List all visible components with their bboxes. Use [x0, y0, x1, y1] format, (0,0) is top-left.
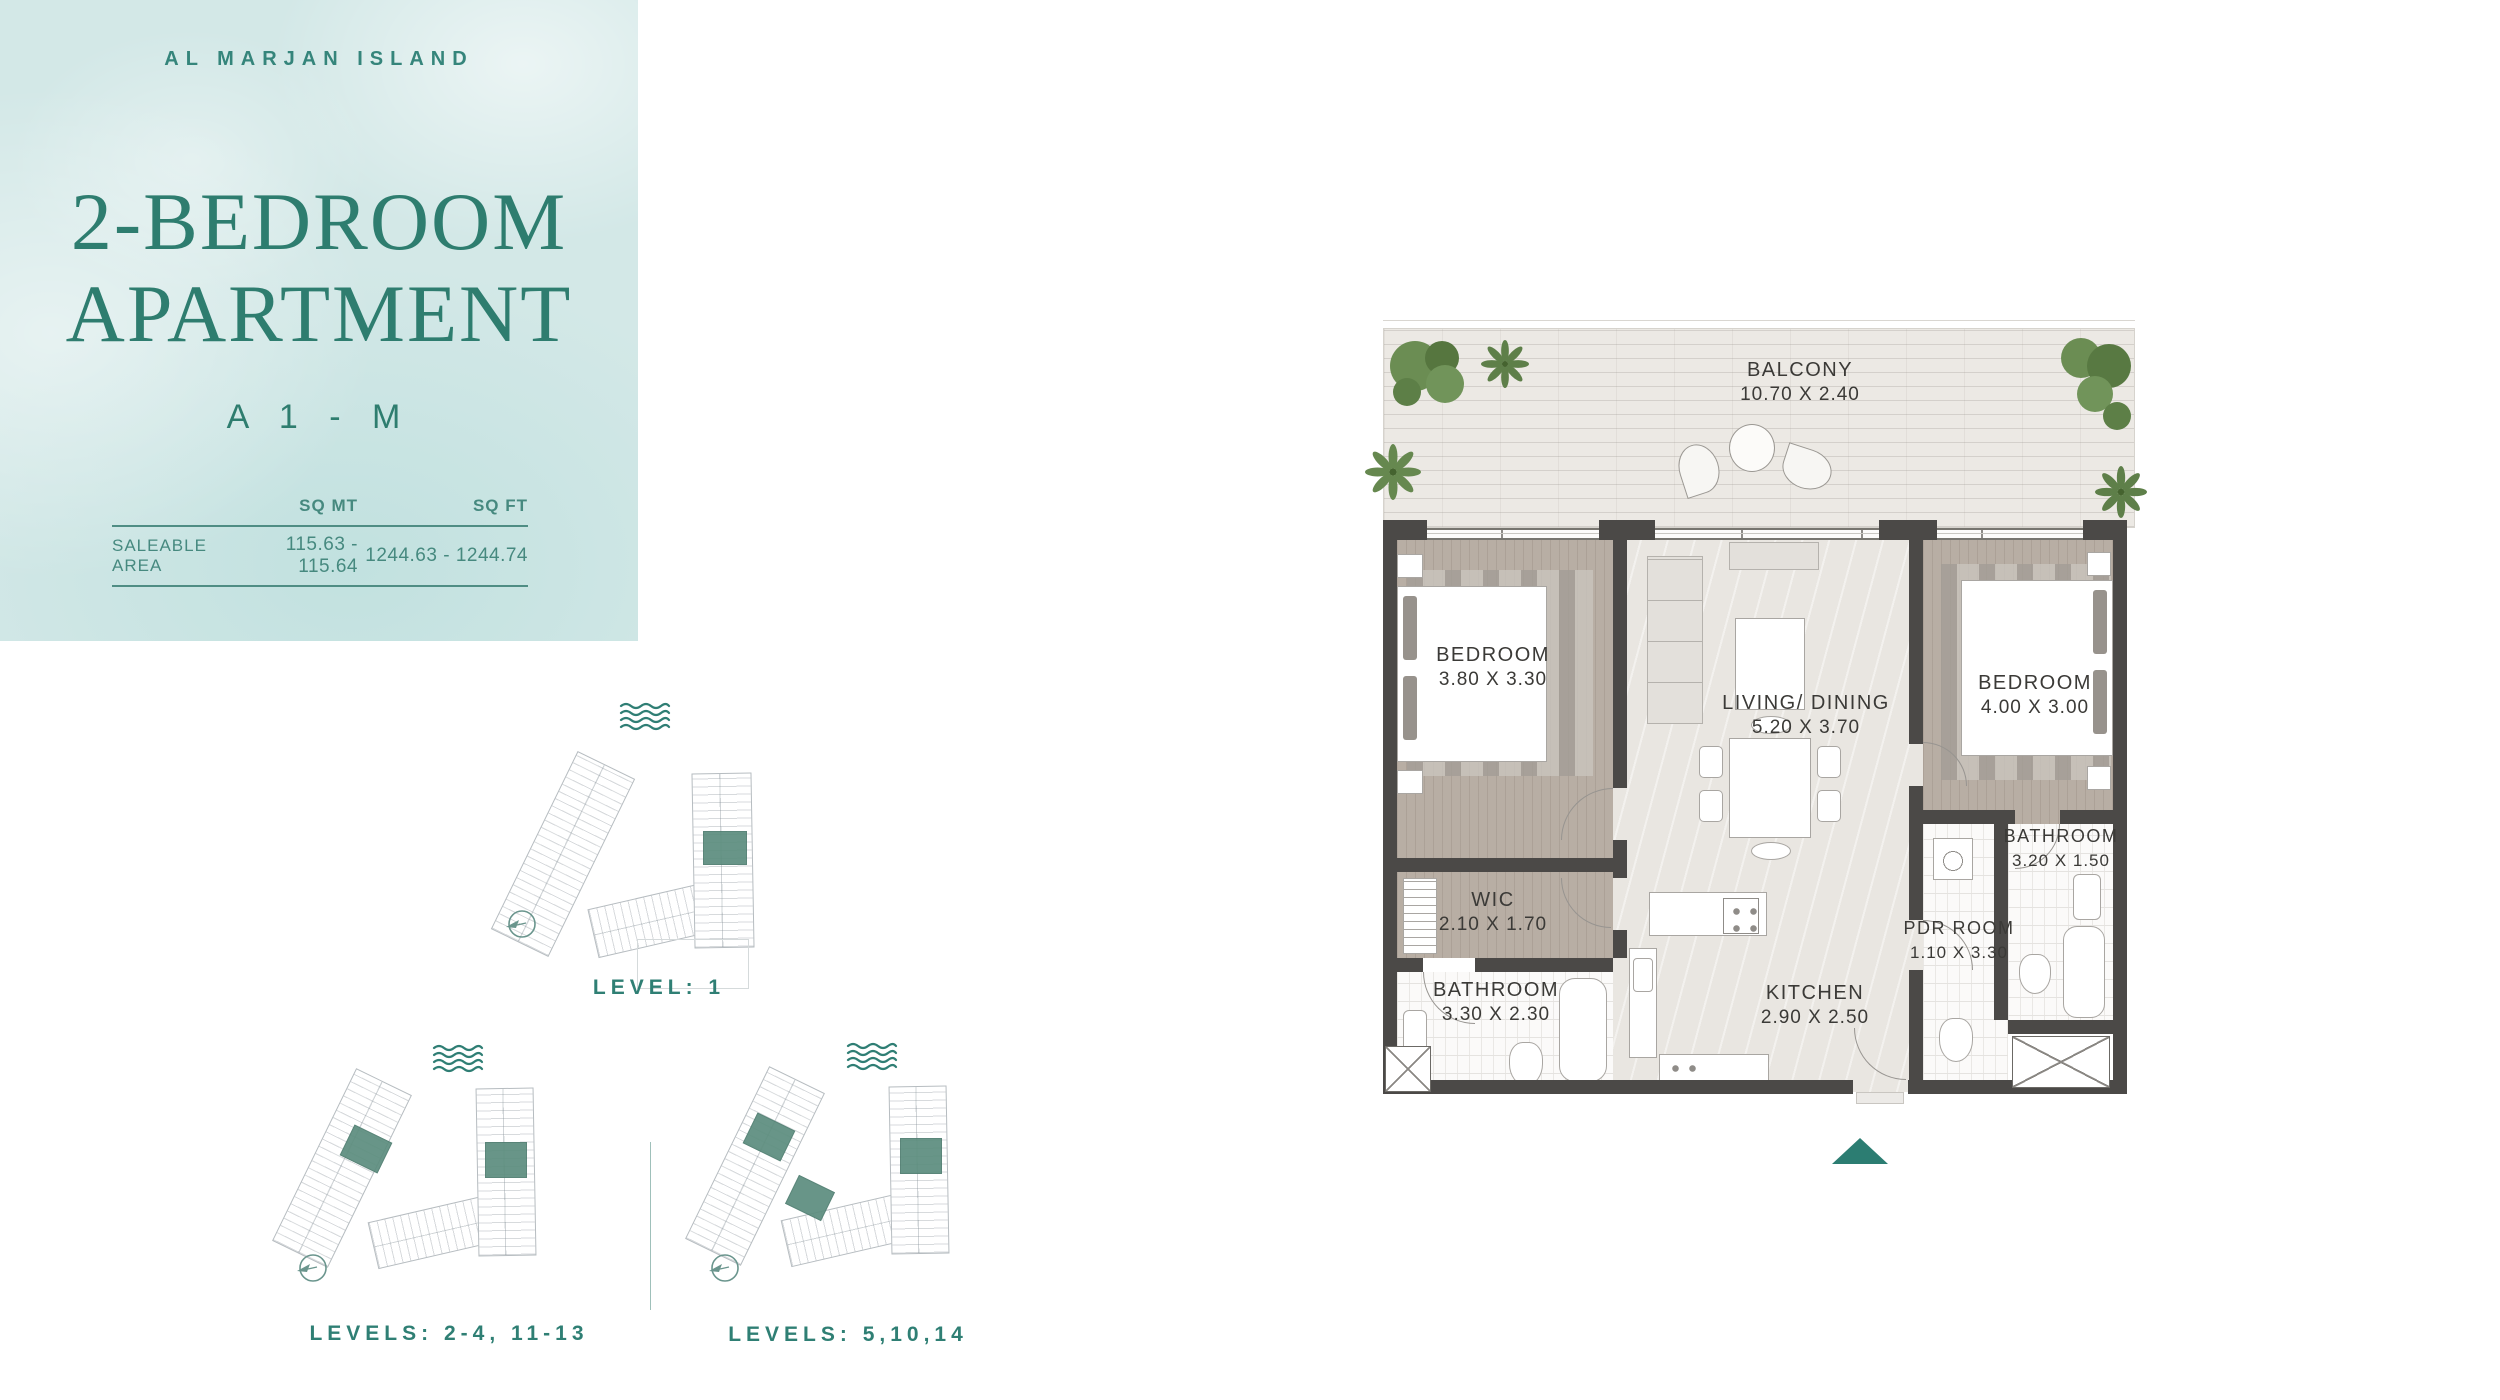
info-panel: AL MARJAN ISLAND 2-BEDROOM APARTMENT A 1… [0, 0, 638, 641]
room-label-living-dining: LIVING/ DINING 5.20 X 3.70 [1722, 693, 1890, 738]
room-name: BATHROOM [2004, 826, 2119, 847]
wall [1383, 524, 1397, 1094]
room-label-bathroom-1: BATHROOM 3.30 X 2.30 [1433, 980, 1559, 1025]
wall [1475, 958, 1613, 972]
table-header-row: SQ MT SQ FT [112, 496, 528, 525]
shaft [2012, 1036, 2110, 1088]
wall [1397, 958, 1423, 972]
room-label-pdr-room: PDR ROOM 1.10 X 3.30 [1904, 918, 2015, 963]
room-name: WIC [1439, 890, 1547, 911]
wall [2060, 810, 2113, 824]
nightstand [2087, 552, 2111, 576]
wall [1909, 540, 1923, 744]
level-1-keyplan [505, 753, 790, 993]
highlighted-unit [703, 831, 747, 865]
title-line-1: 2-BEDROOM [0, 176, 638, 268]
room-label-balcony: BALCONY 10.70 X 2.40 [1740, 360, 1860, 405]
wall [1613, 540, 1627, 788]
wall [2113, 524, 2127, 1094]
wall [1397, 858, 1613, 872]
wall [1923, 810, 2015, 824]
toilet [2019, 954, 2051, 994]
palm-icon [1365, 444, 1421, 500]
room-name: BATHROOM [1433, 980, 1559, 1001]
room-dims: 1.10 X 3.30 [1904, 942, 2015, 963]
dimension-line [1383, 320, 2135, 321]
room-label-bedroom-1: BEDROOM 3.80 X 3.30 [1436, 645, 1550, 690]
room-dims: 2.90 X 2.50 [1761, 1007, 1869, 1028]
entry-direction-icon [1832, 1138, 1888, 1164]
wall [1383, 520, 1427, 540]
sofa [1647, 556, 1703, 724]
dining-chair [1699, 746, 1723, 778]
wardrobe [1403, 878, 1437, 954]
room-name: PDR ROOM [1904, 918, 2015, 939]
dining-chair [1817, 746, 1841, 778]
header-sqft: SQ FT [358, 496, 528, 516]
shaft [1385, 1046, 1431, 1092]
levels-2-4-keyplan [293, 1072, 583, 1277]
waves-icon [432, 1044, 484, 1074]
tree-icon [2051, 332, 2139, 442]
dining-chair [1817, 790, 1841, 822]
wall [2008, 1020, 2113, 1034]
wall [1909, 786, 1923, 824]
entrance-threshold [1856, 1092, 1904, 1104]
keyplan-divider [650, 1142, 651, 1310]
bathtub [2063, 926, 2105, 1018]
nightstand [2087, 766, 2111, 790]
waves-icon [619, 702, 671, 732]
room-label-bathroom-2: BATHROOM 3.20 X 1.50 [2004, 826, 2119, 871]
balcony-table [1729, 424, 1775, 472]
header-sqmt: SQ MT [232, 496, 358, 516]
sink [2073, 874, 2101, 920]
page-title: 2-BEDROOM APARTMENT [0, 176, 638, 360]
sink [1633, 958, 1653, 992]
wall [2083, 520, 2127, 540]
dining-table [1729, 738, 1811, 838]
compass-icon [295, 1251, 329, 1285]
compass-icon [707, 1251, 741, 1285]
highlighted-unit [900, 1138, 942, 1174]
wall [1879, 520, 1937, 540]
row-label: SALEABLE AREA [112, 536, 222, 576]
pillow [2093, 670, 2107, 734]
room-label-wic: WIC 2.10 X 1.70 [1439, 890, 1547, 935]
waves-icon [846, 1042, 898, 1072]
pillow [1403, 596, 1417, 660]
room-dims: 4.00 X 3.00 [1978, 697, 2092, 718]
wall [1909, 970, 1923, 1080]
palm-icon [2095, 466, 2147, 518]
nightstand [1397, 770, 1423, 794]
levels-2-4-label: LEVELS: 2-4, 11-13 [309, 1322, 588, 1346]
bed [1961, 580, 2113, 756]
wall [1613, 840, 1627, 878]
dining-chair [1699, 790, 1723, 822]
pillow [2093, 590, 2107, 654]
room-dims: 3.30 X 2.30 [1433, 1004, 1559, 1025]
compass-icon [504, 907, 538, 941]
apartment-floorplan: BALCONY 10.70 X 2.40 BEDROOM 3.80 X 3.30… [1363, 318, 2153, 1198]
washer [1933, 838, 1973, 880]
room-label-kitchen: KITCHEN 2.90 X 2.50 [1761, 983, 1869, 1028]
toilet [1939, 1018, 1973, 1062]
palm-icon [1481, 340, 1529, 388]
cooktop [1723, 898, 1759, 934]
nightstand [1397, 554, 1423, 578]
table-data-row: SALEABLE AREA 115.63 - 115.64 1244.63 - … [112, 525, 528, 587]
room-name: BEDROOM [1436, 645, 1550, 666]
location-label: AL MARJAN ISLAND [0, 48, 638, 71]
room-name: BEDROOM [1978, 673, 2092, 694]
room-name: KITCHEN [1761, 983, 1869, 1004]
dining-chair [1751, 842, 1791, 860]
highlighted-unit [485, 1142, 527, 1178]
room-name: LIVING/ DINING [1722, 693, 1890, 714]
wall [1383, 1080, 1853, 1094]
room-dims: 2.10 X 1.70 [1439, 914, 1547, 935]
room-dims: 3.80 X 3.30 [1436, 669, 1550, 690]
title-line-2: APARTMENT [0, 268, 638, 360]
room-dims: 3.20 X 1.50 [2004, 850, 2119, 871]
room-label-bedroom-2: BEDROOM 4.00 X 3.00 [1978, 673, 2092, 718]
value-sqft: 1244.63 - 1244.74 [358, 545, 528, 567]
room-dims: 10.70 X 2.40 [1740, 384, 1860, 405]
wall [1599, 520, 1655, 540]
levels-5-10-14-keyplan [706, 1070, 996, 1275]
wall [1909, 824, 1923, 920]
pillow [1403, 676, 1417, 740]
tree-icon [1385, 334, 1477, 418]
levels-5-10-14-label: LEVELS: 5,10,14 [728, 1323, 968, 1347]
room-dims: 5.20 X 3.70 [1722, 717, 1890, 738]
room-name: BALCONY [1740, 360, 1860, 381]
unit-code: A 1 - M [0, 398, 638, 437]
saleable-area-table: SQ MT SQ FT SALEABLE AREA 115.63 - 115.6… [112, 496, 528, 587]
window-strip [1383, 528, 2127, 540]
value-sqmt: 115.63 - 115.64 [232, 534, 358, 578]
tv-console [1729, 542, 1819, 570]
bathtub [1559, 978, 1607, 1082]
wall [1613, 930, 1627, 958]
level-1-label: LEVEL: 1 [593, 976, 725, 1000]
brochure-page: AL MARJAN ISLAND 2-BEDROOM APARTMENT A 1… [0, 0, 2500, 1400]
